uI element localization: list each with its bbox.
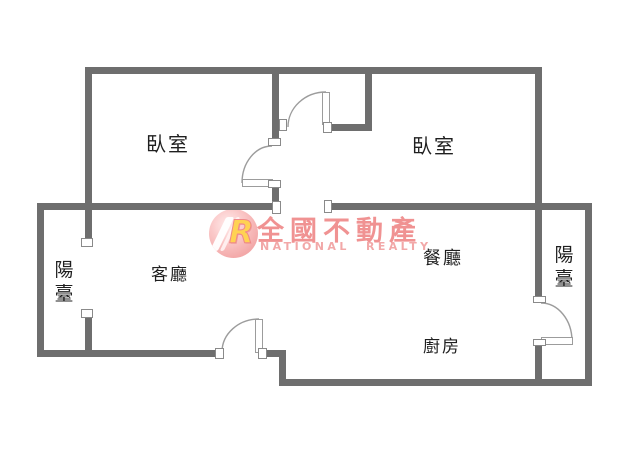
wall-top xyxy=(85,67,542,74)
room-label-dining: 餐廳 xyxy=(423,244,463,270)
closet-door-leaf xyxy=(322,92,330,125)
room-label-bedroom-left: 臥室 xyxy=(146,128,190,157)
wall-middle-right xyxy=(330,203,592,210)
wall-right-vertical-upper xyxy=(535,67,542,297)
wall-outer-left xyxy=(37,203,44,357)
room-label-kitchen: 廚房 xyxy=(423,332,461,357)
floor-plan: R 全國不動產 NATIONAL REALTY 臥室 臥室 客廳 餐廳 廚房 xyxy=(0,0,638,460)
wall-closet-right xyxy=(365,67,372,131)
wall-bottom-living xyxy=(37,350,219,357)
living-door-hinge xyxy=(258,348,267,359)
watermark-brand-name-en: NATIONAL REALTY xyxy=(260,240,432,253)
closet-door-arc xyxy=(288,92,326,127)
wall-right-vertical-lower xyxy=(535,345,542,379)
balcony-left-char-top: 陽 xyxy=(53,258,75,282)
balcony-left-opening-jamb-bottom xyxy=(81,309,93,318)
balcony-right-door-hinge xyxy=(533,339,546,346)
balcony-left-char-bottom: 臺 xyxy=(53,282,75,306)
realty-logo-icon: R xyxy=(209,209,258,258)
logo-letter: R xyxy=(229,213,254,251)
balcony-right-door-jamb-top xyxy=(533,296,546,303)
balcony-right-door-arc xyxy=(541,303,572,341)
balcony-right-char-bottom: 臺 xyxy=(553,267,575,291)
hall-opening-jamb-left xyxy=(272,201,281,214)
living-door-arc xyxy=(222,319,259,352)
wall-left-vertical-upper xyxy=(85,67,92,239)
bedroom-left-door-arc xyxy=(242,146,272,183)
balcony-left-opening-jamb-top xyxy=(81,238,93,247)
room-label-bedroom-right: 臥室 xyxy=(412,130,456,159)
closet-door-hinge xyxy=(323,122,332,133)
wall-bottom-kitchen xyxy=(279,379,592,386)
hall-opening-jamb-right xyxy=(324,200,332,213)
living-door-jamb xyxy=(215,348,224,359)
room-label-living: 客廳 xyxy=(151,260,189,285)
closet-door-jamb xyxy=(279,119,287,131)
bedroom-left-door-hinge xyxy=(268,180,281,188)
room-label-balcony-right: 陽 臺 xyxy=(553,243,575,291)
wall-middle-left xyxy=(37,203,277,210)
room-label-balcony-left: 陽 臺 xyxy=(53,258,75,306)
wall-bedroom-divider xyxy=(272,67,279,146)
wall-closet-bottom xyxy=(332,124,372,131)
balcony-right-char-top: 陽 xyxy=(553,243,575,267)
bedroom-left-door-jamb-top xyxy=(268,138,281,146)
wall-outer-right xyxy=(585,203,592,386)
